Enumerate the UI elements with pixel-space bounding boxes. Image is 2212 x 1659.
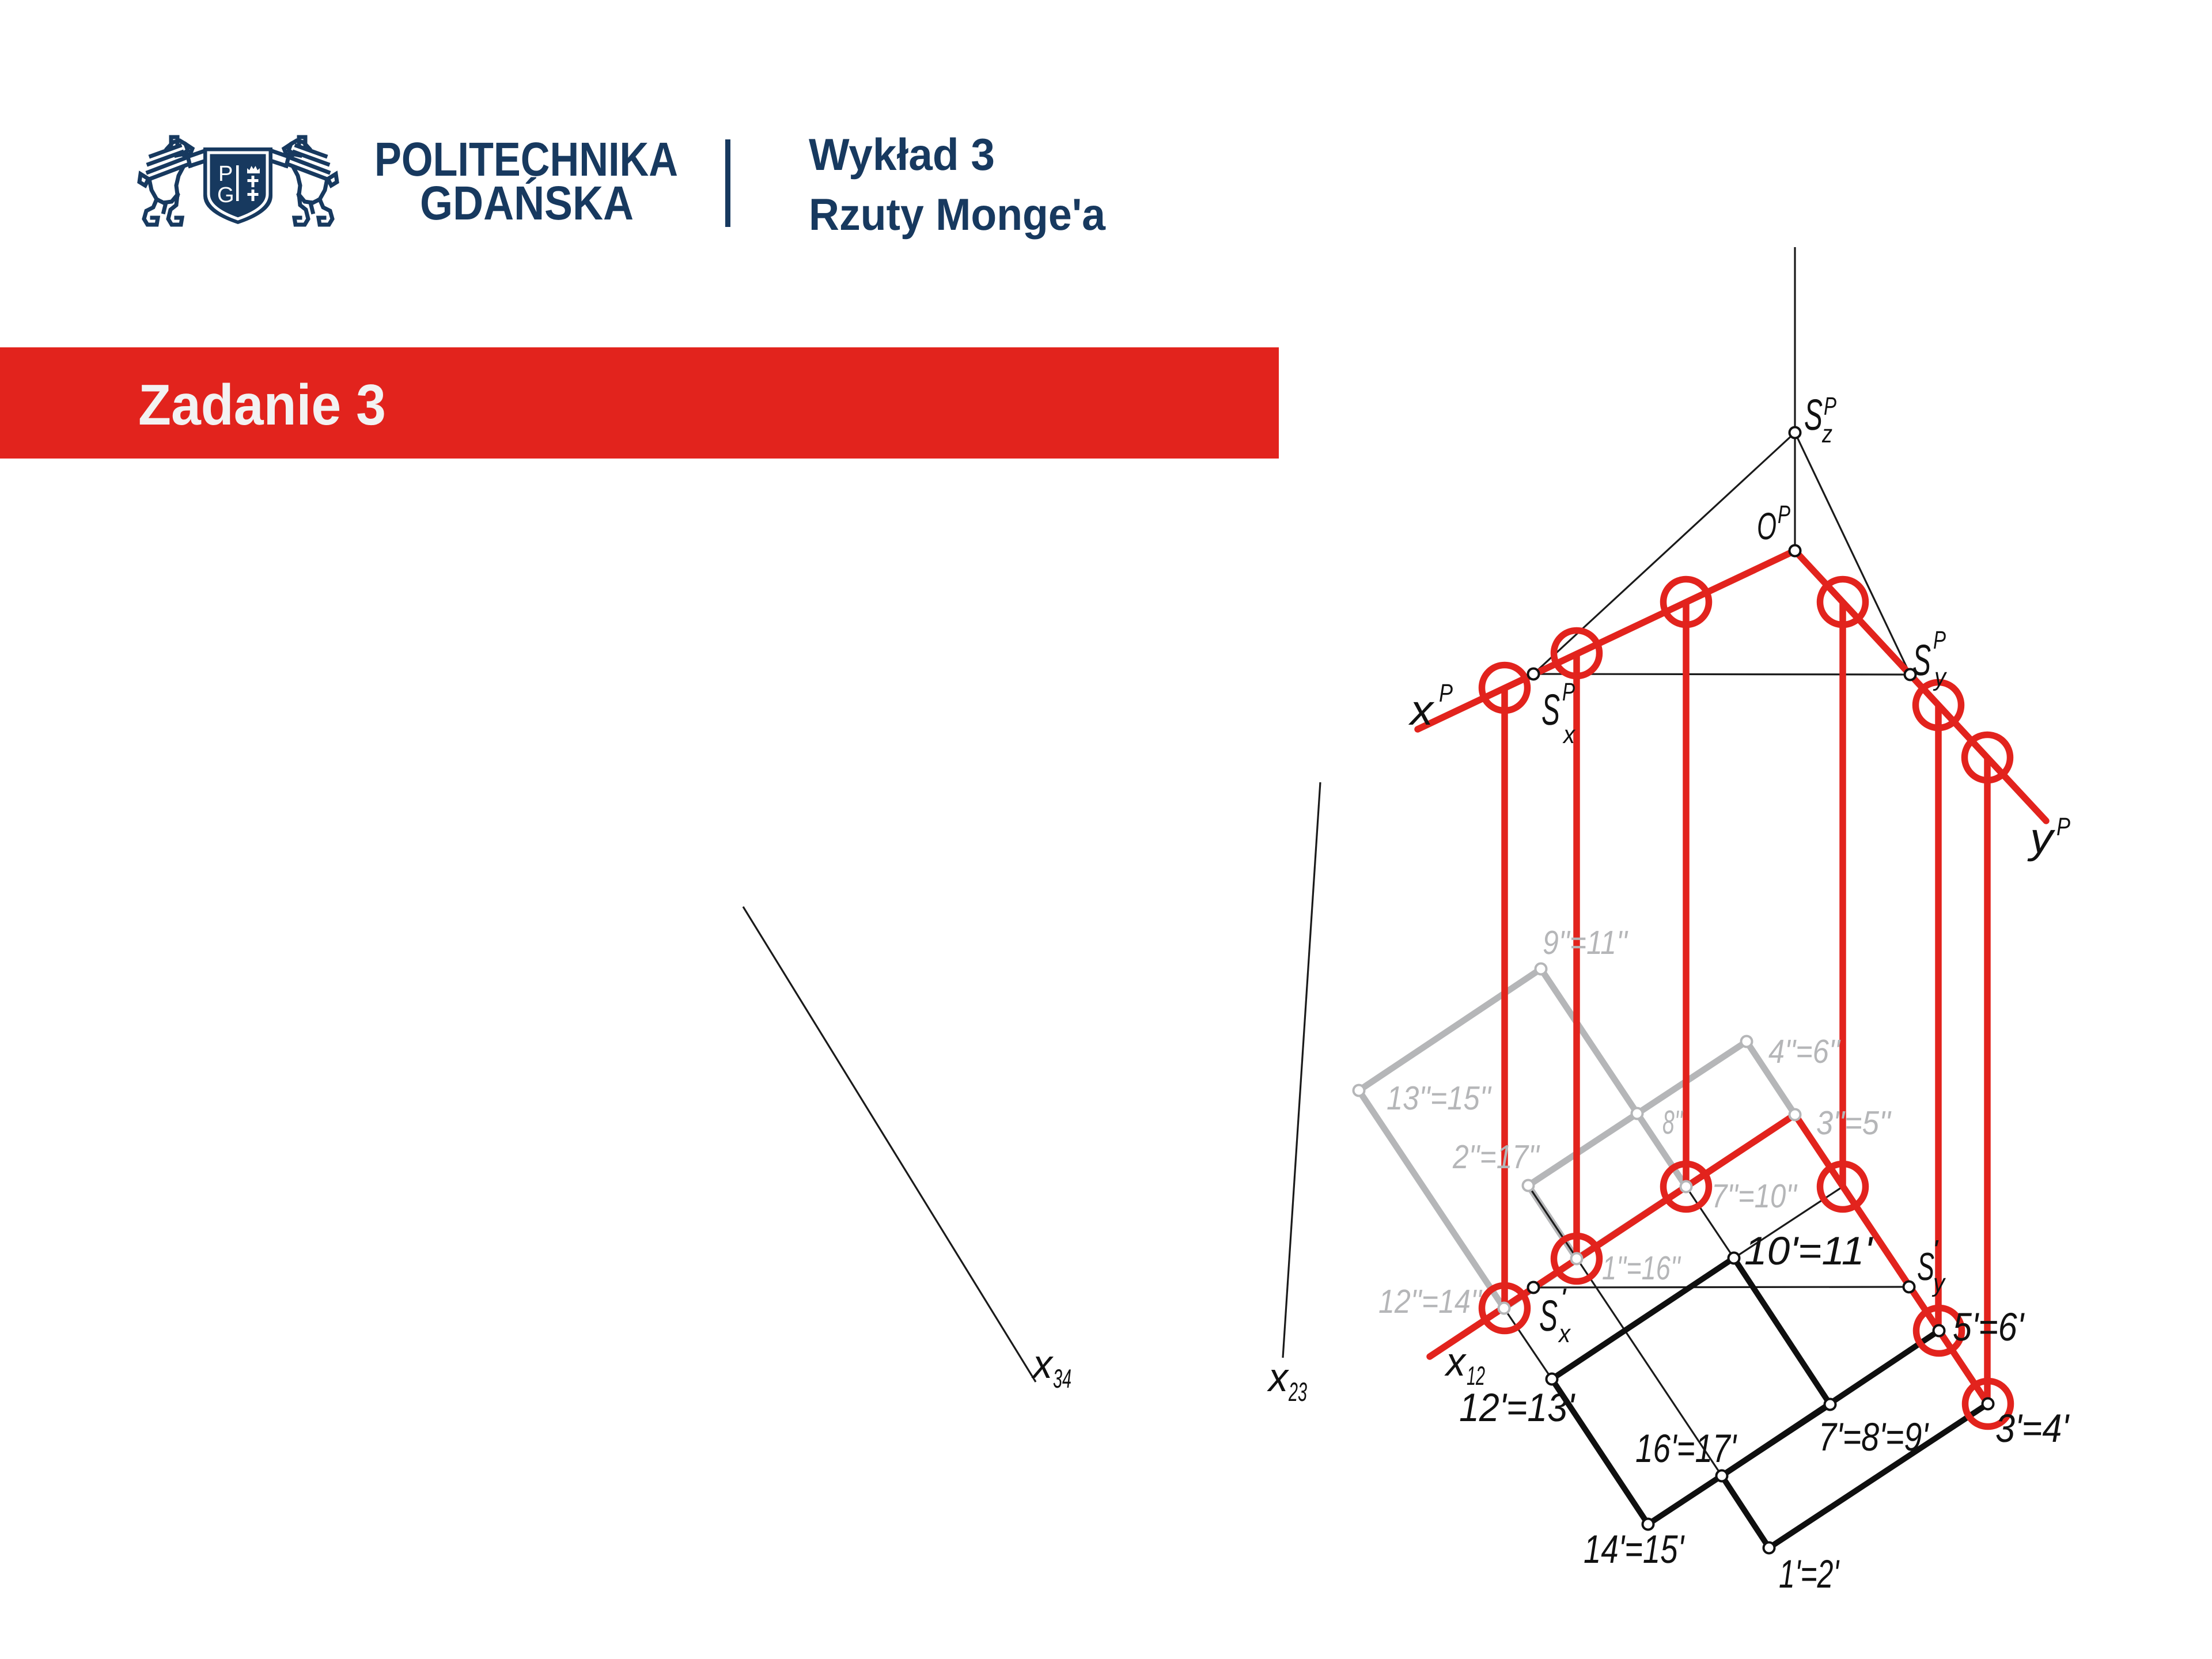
svg-text:y: y bbox=[1931, 1269, 1946, 1297]
svg-text:x: x bbox=[1408, 686, 1435, 734]
svg-text:3''=5'': 3''=5'' bbox=[1816, 1104, 1892, 1142]
svg-text:8'': 8'' bbox=[1662, 1104, 1683, 1141]
svg-text:1''=16'': 1''=16'' bbox=[1602, 1249, 1681, 1287]
svg-text:S: S bbox=[1912, 636, 1931, 685]
svg-text:y: y bbox=[2027, 814, 2056, 862]
svg-text:Rzuty Monge'a: Rzuty Monge'a bbox=[809, 189, 1106, 240]
svg-text:P: P bbox=[1439, 679, 1453, 707]
svg-text:7'=8'=9': 7'=8'=9' bbox=[1819, 1415, 1929, 1459]
svg-text:x: x bbox=[1558, 1320, 1571, 1348]
svg-text:P: P bbox=[1778, 501, 1790, 529]
svg-text:x: x bbox=[1444, 1339, 1467, 1384]
svg-text:3'=4': 3'=4' bbox=[1995, 1406, 2070, 1450]
svg-text:2''=17'': 2''=17'' bbox=[1452, 1138, 1540, 1176]
svg-text:O: O bbox=[1757, 505, 1777, 547]
svg-text:S: S bbox=[1541, 685, 1560, 734]
svg-text:x: x bbox=[1031, 1342, 1054, 1387]
svg-text:x: x bbox=[1562, 721, 1576, 749]
svg-text:10'=11': 10'=11' bbox=[1744, 1229, 1874, 1273]
svg-text:Zadanie 3: Zadanie 3 bbox=[138, 373, 386, 437]
svg-text:S: S bbox=[1539, 1291, 1558, 1340]
svg-text:P: P bbox=[218, 162, 233, 186]
svg-text:P: P bbox=[1933, 626, 1946, 654]
svg-text:14'=15': 14'=15' bbox=[1584, 1527, 1685, 1571]
svg-text:P: P bbox=[1824, 392, 1836, 421]
svg-text:12''=14'': 12''=14'' bbox=[1378, 1283, 1483, 1320]
svg-text:9''=11'': 9''=11'' bbox=[1543, 924, 1628, 961]
svg-text:G: G bbox=[217, 183, 234, 207]
svg-text:23: 23 bbox=[1288, 1377, 1307, 1407]
svg-text:12: 12 bbox=[1467, 1361, 1485, 1391]
svg-text:Wykład 3: Wykład 3 bbox=[809, 129, 995, 180]
svg-text:34: 34 bbox=[1053, 1363, 1071, 1393]
svg-text:13''=15'': 13''=15'' bbox=[1387, 1080, 1492, 1117]
svg-text:1'=2': 1'=2' bbox=[1779, 1552, 1840, 1596]
svg-text:5'=6': 5'=6' bbox=[1953, 1305, 2025, 1349]
svg-text:4''=6'': 4''=6'' bbox=[1768, 1033, 1841, 1070]
svg-text:z: z bbox=[1821, 420, 1832, 448]
svg-text:P: P bbox=[1562, 678, 1575, 706]
svg-text:GDAŃSKA: GDAŃSKA bbox=[420, 176, 634, 230]
svg-text:P: P bbox=[2056, 813, 2071, 841]
svg-text:12'=13': 12'=13' bbox=[1459, 1385, 1576, 1430]
svg-text:x: x bbox=[1267, 1355, 1290, 1400]
svg-text:S: S bbox=[1804, 391, 1823, 440]
svg-text:y: y bbox=[1933, 663, 1947, 691]
svg-text:16'=17': 16'=17' bbox=[1635, 1426, 1737, 1471]
svg-text:7''=10'': 7''=10'' bbox=[1711, 1177, 1798, 1215]
